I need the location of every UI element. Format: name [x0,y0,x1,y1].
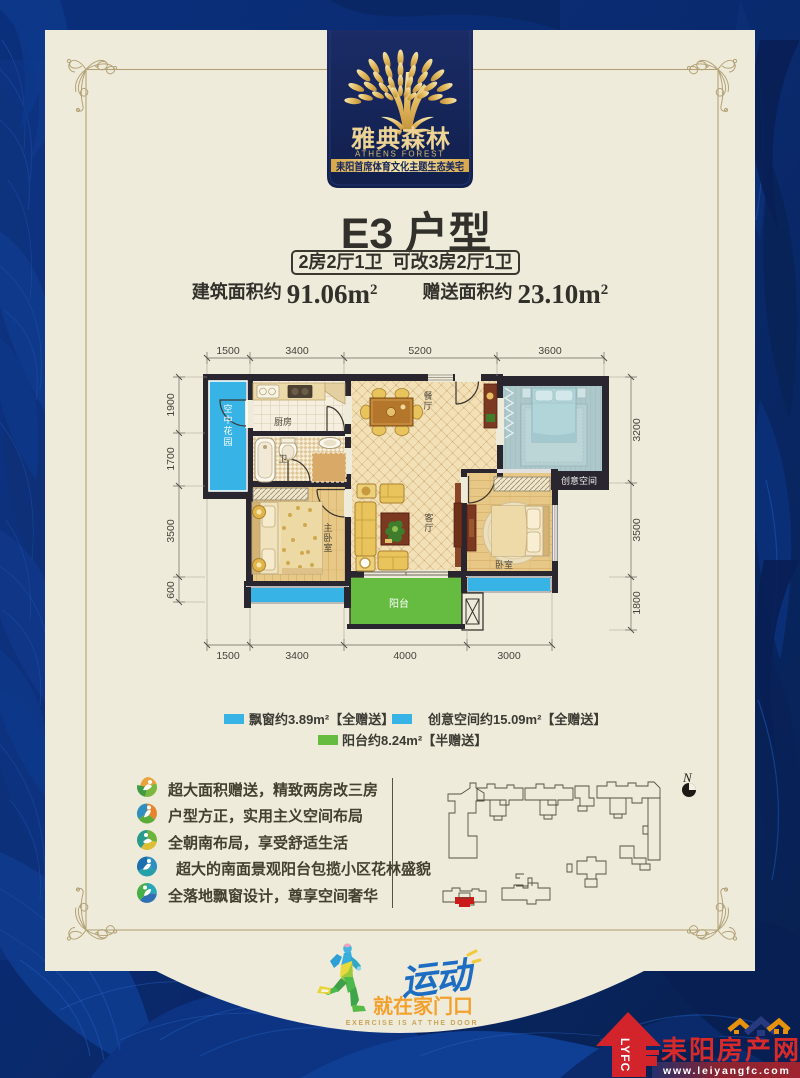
svg-text:LYFC: LYFC [618,1038,632,1072]
svg-text:耒阳房产网: 耒阳房产网 [661,1035,800,1065]
svg-text:www.leiyangfc.com: www.leiyangfc.com [662,1065,791,1077]
